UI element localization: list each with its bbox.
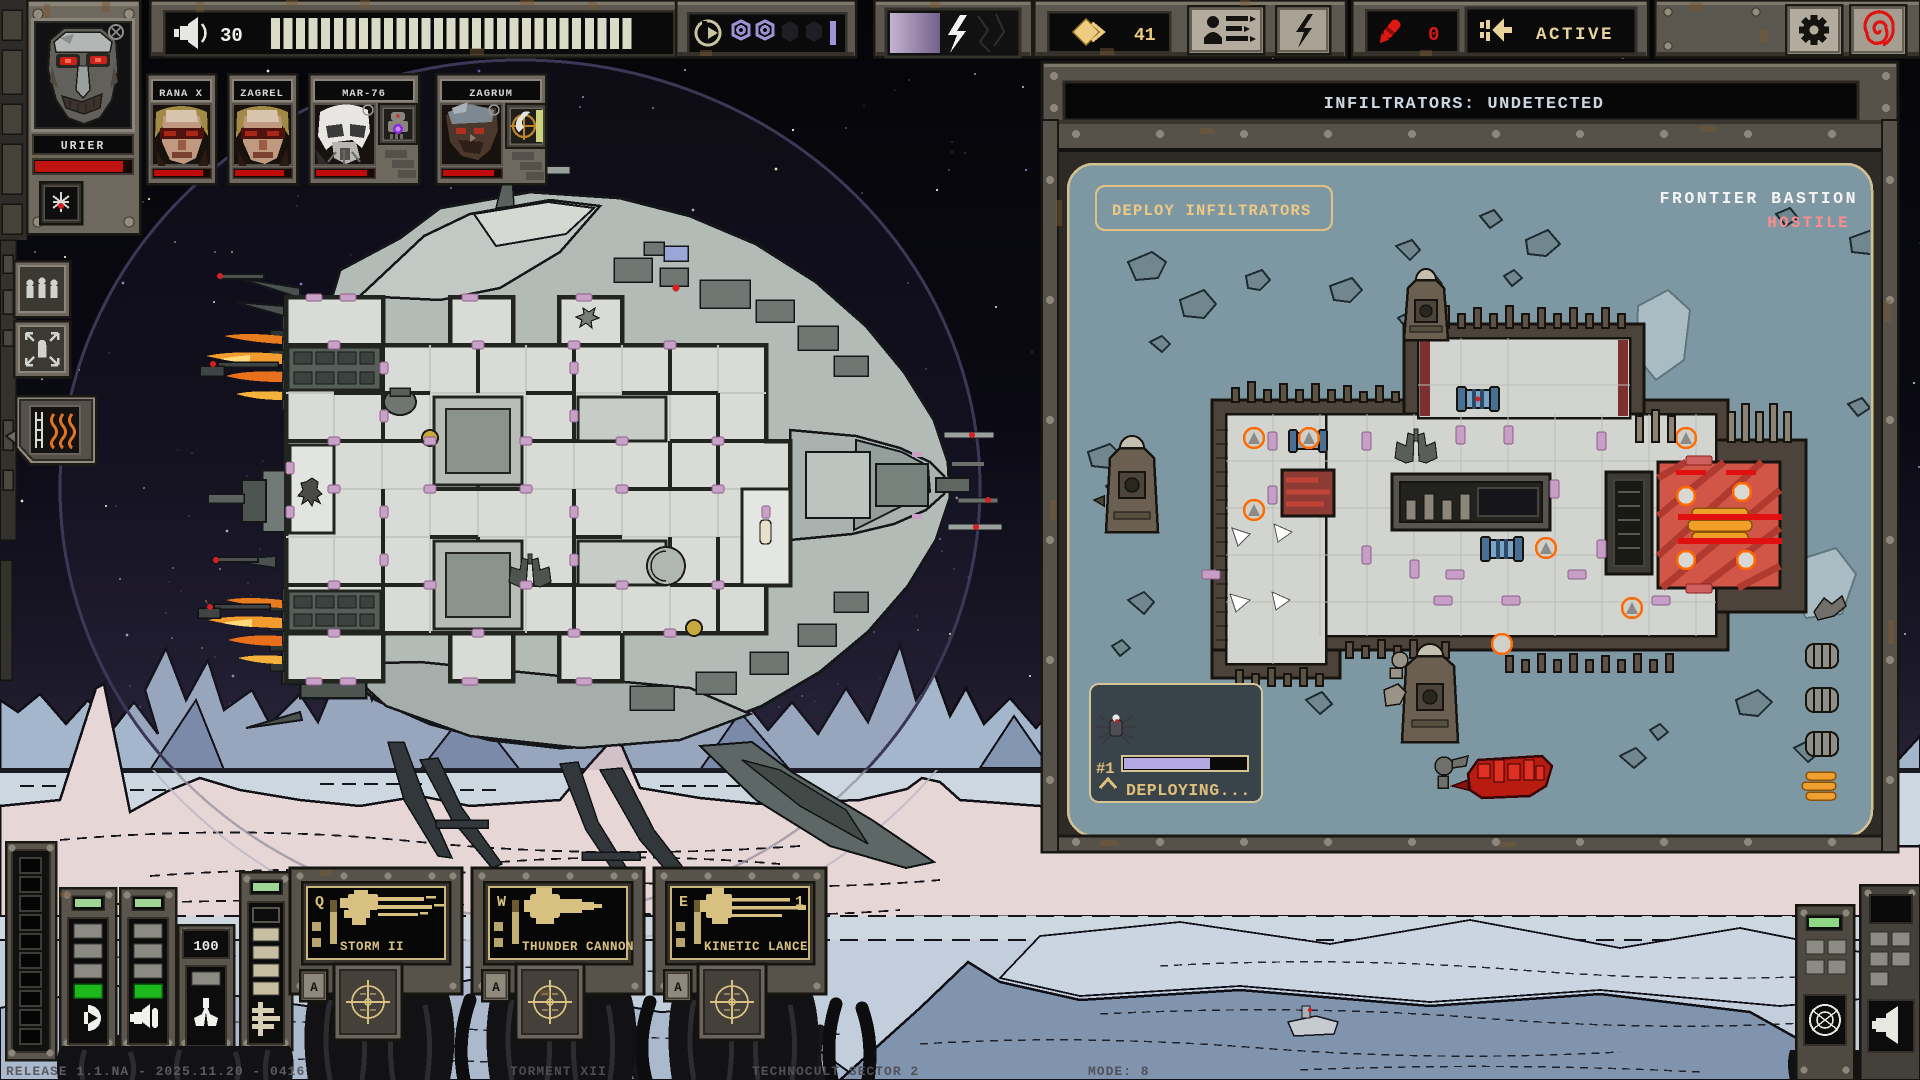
svg-text:DEPLOYING...: DEPLOYING... — [1126, 781, 1251, 800]
svg-text:RANA X: RANA X — [159, 88, 203, 100]
svg-text:A: A — [674, 981, 682, 995]
svg-text:MODE: 8: MODE: 8 — [1088, 1064, 1150, 1079]
svg-text:41: 41 — [1134, 26, 1156, 46]
svg-text:RELEASE 1.1.NA - 2025.11.20 -: RELEASE 1.1.NA - 2025.11.20 - 0416 — [6, 1064, 305, 1079]
svg-text:KINETIC LANCE: KINETIC LANCE — [704, 940, 808, 954]
svg-text:100: 100 — [193, 939, 218, 955]
svg-text:URIER: URIER — [61, 140, 106, 153]
svg-text:30: 30 — [220, 25, 243, 47]
svg-text:ZAGREL: ZAGREL — [240, 88, 284, 100]
svg-text:A: A — [310, 981, 318, 995]
svg-text:INFILTRATORS: UNDETECTED: INFILTRATORS: UNDETECTED — [1324, 95, 1605, 114]
svg-text:TECHNOCULT SECTOR 2: TECHNOCULT SECTOR 2 — [752, 1064, 919, 1079]
svg-text:HOSTILE: HOSTILE — [1767, 214, 1850, 232]
svg-text:FRONTIER BASTION: FRONTIER BASTION — [1660, 189, 1858, 208]
svg-text:MAR-76: MAR-76 — [342, 88, 386, 100]
svg-text:STORM II: STORM II — [340, 940, 404, 954]
svg-text:E: E — [679, 894, 688, 911]
svg-text:A: A — [492, 981, 500, 995]
svg-text:0: 0 — [1428, 24, 1439, 46]
svg-text:ZAGRUM: ZAGRUM — [469, 88, 513, 100]
svg-text:DEPLOY INFILTRATORS: DEPLOY INFILTRATORS — [1112, 202, 1312, 220]
svg-text:TORMENT XII: TORMENT XII — [510, 1064, 607, 1079]
svg-text:ACTIVE: ACTIVE — [1536, 25, 1614, 45]
svg-text:W: W — [497, 894, 506, 911]
svg-text:THUNDER CANNON: THUNDER CANNON — [522, 940, 634, 954]
svg-text:Q: Q — [315, 894, 324, 911]
svg-text:#1: #1 — [1096, 760, 1115, 778]
